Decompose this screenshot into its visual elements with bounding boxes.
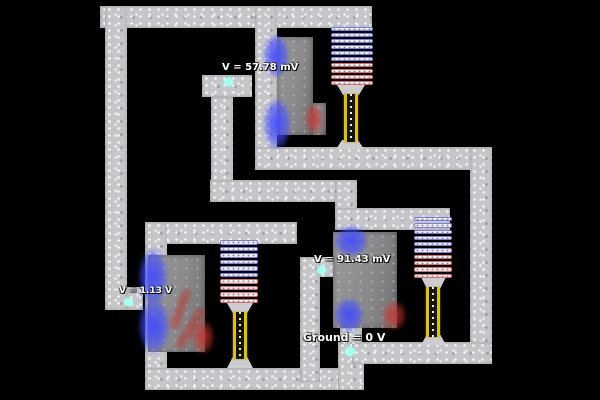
voltage-label: V = 57.78 mV bbox=[222, 62, 298, 73]
ladder-plate-negative bbox=[414, 242, 452, 246]
ladder-plate-negative bbox=[414, 236, 452, 240]
ground-label: Ground = 0 V bbox=[303, 331, 385, 344]
ladder-plate-negative bbox=[414, 248, 452, 252]
ladder-plate-negative bbox=[331, 27, 373, 31]
ladder-plate-negative bbox=[331, 45, 373, 49]
probe-dot[interactable] bbox=[317, 266, 326, 274]
ladder-plate-negative bbox=[414, 217, 452, 221]
ladder-plate-negative bbox=[220, 273, 258, 278]
resistor-ladder bbox=[220, 240, 258, 303]
voltage-label: V = 91.43 mV bbox=[314, 254, 390, 265]
ladder-plate-positive bbox=[414, 267, 452, 271]
ladder-plate-positive bbox=[220, 286, 258, 291]
wire-segment bbox=[352, 342, 492, 364]
ladder-plate-negative bbox=[331, 39, 373, 43]
wire-segment bbox=[470, 147, 492, 364]
ladder-plate-negative bbox=[331, 51, 373, 55]
ladder-plate-positive bbox=[220, 279, 258, 284]
ladder-plate-positive bbox=[414, 261, 452, 265]
wire-segment bbox=[300, 257, 320, 382]
wire-segment bbox=[100, 6, 372, 28]
ladder-plate-negative bbox=[331, 33, 373, 37]
ladder-plate-negative bbox=[220, 260, 258, 265]
circuit-simulation-canvas: V = 57.78 mV V = 1.13 V V = 91.43 mV Gro… bbox=[0, 0, 600, 400]
probe-dot[interactable] bbox=[224, 78, 233, 86]
ladder-plate-positive bbox=[331, 75, 373, 79]
positive-charge-cloud bbox=[382, 301, 406, 330]
ladder-plate-negative bbox=[414, 230, 452, 234]
ladder-plate-negative bbox=[220, 240, 258, 245]
positive-charge-cloud bbox=[305, 104, 323, 134]
ladder-plate-positive bbox=[220, 292, 258, 297]
voltage-label: V = 1.13 V bbox=[119, 286, 172, 296]
negative-charge-cloud bbox=[334, 225, 368, 257]
probe-dot[interactable] bbox=[124, 298, 133, 306]
ladder-plate-negative bbox=[220, 266, 258, 271]
ladder-plate-positive bbox=[331, 69, 373, 73]
filament-resistor bbox=[426, 287, 440, 337]
negative-charge-cloud bbox=[138, 298, 170, 354]
ladder-plate-negative bbox=[331, 57, 373, 61]
filament-resistor bbox=[233, 312, 247, 359]
probe-dot[interactable] bbox=[345, 347, 355, 356]
negative-charge-cloud bbox=[263, 98, 291, 150]
ladder-plate-negative bbox=[414, 223, 452, 227]
ladder-plate-positive bbox=[331, 81, 373, 85]
wire-segment bbox=[255, 147, 490, 170]
ladder-plate-positive bbox=[414, 274, 452, 278]
ladder-plate-positive bbox=[220, 299, 258, 304]
wire-segment bbox=[105, 6, 127, 310]
wire-segment bbox=[145, 368, 364, 390]
ladder-plate-negative bbox=[220, 253, 258, 258]
ladder-plate-negative bbox=[220, 247, 258, 252]
ladder-plate-positive bbox=[331, 63, 373, 67]
resistor-ladder bbox=[331, 27, 373, 85]
resistor-ladder bbox=[414, 217, 452, 278]
negative-charge-cloud bbox=[334, 298, 364, 332]
filament-resistor bbox=[344, 94, 358, 142]
ladder-plate-positive bbox=[414, 255, 452, 259]
